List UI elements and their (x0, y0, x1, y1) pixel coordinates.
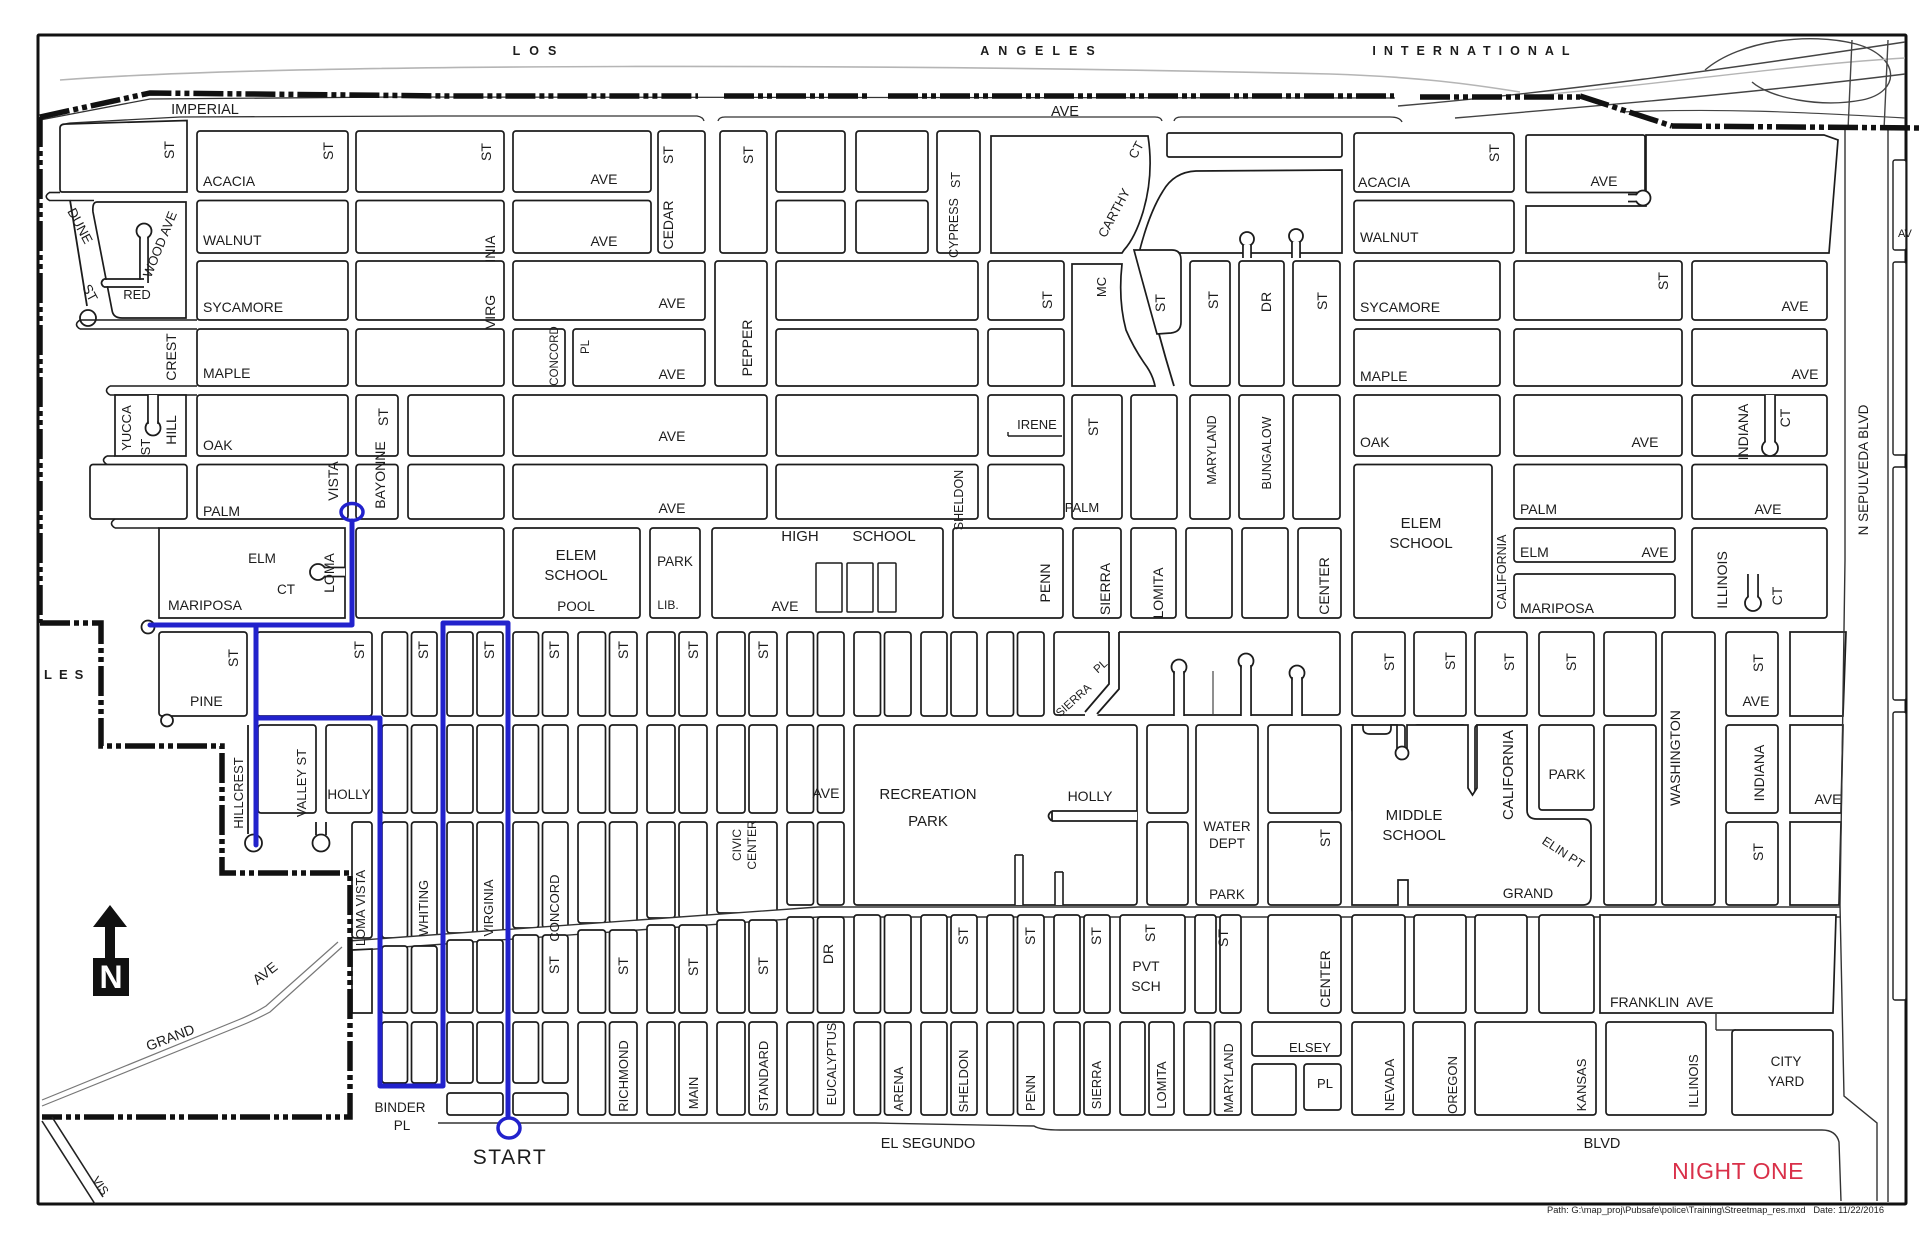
svg-text:EUCALYPTUS: EUCALYPTUS (825, 1023, 839, 1105)
svg-text:MAPLE: MAPLE (1360, 368, 1407, 384)
svg-text:N: N (99, 959, 122, 995)
svg-text:AVE: AVE (1632, 434, 1659, 450)
svg-text:LOMA VISTA: LOMA VISTA (353, 870, 368, 947)
svg-text:CT: CT (1777, 408, 1793, 427)
svg-text:ST: ST (1486, 144, 1502, 162)
svg-text:MARIPOSA: MARIPOSA (1520, 600, 1595, 616)
svg-text:AVE: AVE (772, 598, 799, 614)
svg-text:ST: ST (1501, 653, 1517, 671)
svg-text:WHITING: WHITING (416, 880, 431, 936)
svg-text:PARK: PARK (1548, 766, 1586, 782)
svg-text:LOMITA: LOMITA (1154, 1061, 1169, 1109)
svg-text:MARYLAND: MARYLAND (1222, 1043, 1236, 1112)
svg-text:BINDER: BINDER (374, 1100, 425, 1115)
svg-text:CALIFORNIA: CALIFORNIA (1495, 534, 1509, 610)
svg-text:CENTER: CENTER (1317, 950, 1333, 1008)
svg-text:BAYONNE: BAYONNE (372, 441, 388, 508)
svg-text:ST: ST (375, 408, 391, 426)
svg-text:PALM: PALM (1065, 500, 1099, 515)
svg-text:ST: ST (1039, 291, 1055, 309)
svg-text:AVE: AVE (1815, 791, 1842, 807)
svg-text:ST: ST (685, 958, 701, 976)
svg-text:ELSEY: ELSEY (1289, 1040, 1331, 1055)
svg-text:BLVD: BLVD (1584, 1136, 1621, 1152)
svg-text:ST: ST (1442, 652, 1458, 670)
svg-text:ST: ST (320, 142, 336, 160)
svg-text:PENN: PENN (1023, 1075, 1038, 1111)
svg-text:LOS: LOS (513, 44, 566, 58)
svg-text:ST: ST (1314, 292, 1330, 310)
svg-text:AVE: AVE (1792, 366, 1819, 382)
svg-text:PARK: PARK (908, 813, 948, 830)
svg-text:SIERRA: SIERRA (1097, 562, 1113, 615)
svg-text:VISTA: VISTA (325, 461, 341, 501)
svg-text:SCH: SCH (1131, 978, 1161, 994)
svg-text:AVE: AVE (1743, 693, 1770, 709)
svg-text:SYCAMORE: SYCAMORE (1360, 299, 1440, 315)
svg-text:ELM: ELM (248, 551, 276, 566)
svg-text:CIVIC: CIVIC (730, 829, 744, 861)
svg-text:ILLINOIS: ILLINOIS (1686, 1054, 1701, 1108)
svg-text:FRANKLIN: FRANKLIN (1610, 994, 1679, 1010)
svg-text:MAIN: MAIN (686, 1077, 701, 1110)
svg-text:ELEM: ELEM (1401, 515, 1442, 532)
svg-text:ST: ST (1317, 829, 1333, 847)
svg-text:STANDARD: STANDARD (756, 1041, 771, 1112)
svg-text:PL: PL (580, 339, 592, 354)
svg-text:AVE: AVE (1755, 501, 1782, 517)
svg-text:PL: PL (394, 1118, 411, 1133)
svg-text:YARD: YARD (1768, 1074, 1805, 1089)
svg-text:OAK: OAK (203, 437, 233, 453)
svg-text:MARIPOSA: MARIPOSA (168, 597, 243, 613)
svg-text:N SEPULVEDA BLVD: N SEPULVEDA BLVD (1856, 404, 1871, 535)
svg-text:ST: ST (660, 146, 676, 164)
svg-text:MC: MC (1094, 277, 1109, 297)
svg-text:ST: ST (685, 641, 701, 659)
svg-text:ST: ST (1750, 654, 1766, 672)
svg-text:ST: ST (1381, 653, 1397, 671)
svg-text:OREGON: OREGON (1445, 1056, 1460, 1114)
svg-text:ST: ST (546, 641, 562, 659)
svg-text:ST: ST (1088, 927, 1104, 945)
svg-text:AVE: AVE (591, 233, 618, 249)
svg-text:NEVADA: NEVADA (1382, 1058, 1397, 1111)
svg-text:ST: ST (955, 927, 971, 945)
svg-text:INDIANA: INDIANA (1751, 744, 1767, 801)
svg-text:ST: ST (1142, 924, 1158, 942)
svg-text:ARENA: ARENA (891, 1066, 906, 1111)
svg-text:AVE: AVE (591, 171, 618, 187)
svg-text:ELM: ELM (1520, 544, 1549, 560)
svg-text:KANSAS: KANSAS (1574, 1058, 1589, 1111)
svg-text:AVE: AVE (1591, 173, 1618, 189)
svg-text:LIB.: LIB. (657, 598, 678, 612)
svg-text:WASHINGTON: WASHINGTON (1667, 710, 1683, 806)
svg-text:SCHOOL: SCHOOL (544, 567, 607, 584)
svg-text:PVT: PVT (1132, 958, 1160, 974)
svg-text:CENTER: CENTER (1316, 557, 1332, 615)
svg-text:PL: PL (1317, 1076, 1333, 1091)
svg-text:ST: ST (1085, 418, 1101, 436)
svg-text:IRENE: IRENE (1017, 417, 1057, 432)
svg-text:CENTER: CENTER (745, 820, 759, 870)
svg-text:ST: ST (481, 641, 497, 659)
svg-text:WALNUT: WALNUT (203, 232, 262, 248)
svg-text:PENN: PENN (1037, 564, 1053, 603)
svg-text:AVE: AVE (1687, 994, 1714, 1010)
svg-text:VIRG: VIRG (482, 295, 498, 329)
svg-text:AV: AV (1898, 228, 1913, 240)
svg-text:WATER: WATER (1203, 819, 1250, 834)
svg-text:HOLLY: HOLLY (1068, 788, 1114, 804)
svg-text:BUNGALOW: BUNGALOW (1260, 416, 1274, 489)
svg-text:CONCORD: CONCORD (549, 326, 561, 385)
svg-text:SHELDON: SHELDON (956, 1050, 971, 1113)
svg-text:CT: CT (277, 582, 295, 597)
svg-text:AVE: AVE (659, 428, 686, 444)
svg-text:ACACIA: ACACIA (1358, 174, 1411, 190)
svg-text:ST: ST (615, 641, 631, 659)
svg-text:HIGH: HIGH (781, 528, 819, 545)
svg-text:START: START (473, 1146, 547, 1169)
svg-text:CYPRESS: CYPRESS (947, 198, 961, 258)
svg-text:YUCCA: YUCCA (119, 405, 134, 451)
svg-text:SCHOOL: SCHOOL (1389, 535, 1452, 552)
svg-text:NIGHT ONE: NIGHT ONE (1672, 1158, 1804, 1184)
svg-text:ELEM: ELEM (556, 547, 597, 564)
svg-text:RED: RED (123, 287, 150, 302)
svg-text:ST: ST (138, 439, 153, 456)
svg-text:ST: ST (1563, 653, 1579, 671)
svg-text:ST: ST (161, 141, 177, 159)
svg-text:ST: ST (225, 649, 241, 667)
svg-text:MARYLAND: MARYLAND (1205, 415, 1219, 484)
svg-text:SCHOOL: SCHOOL (1382, 827, 1445, 844)
svg-text:EL SEGUNDO: EL SEGUNDO (881, 1136, 976, 1152)
svg-text:ST: ST (1022, 927, 1038, 945)
svg-text:ST: ST (755, 641, 771, 659)
svg-text:DR: DR (820, 944, 836, 964)
svg-text:MAPLE: MAPLE (203, 365, 250, 381)
svg-text:PARK: PARK (1209, 887, 1245, 902)
svg-text:ST: ST (1215, 929, 1231, 947)
svg-text:HILLCREST: HILLCREST (231, 757, 246, 829)
svg-text:AVE: AVE (1051, 104, 1079, 120)
svg-text:HILL: HILL (163, 415, 179, 445)
svg-text:ST: ST (415, 641, 431, 659)
svg-text:IMPERIAL: IMPERIAL (171, 102, 239, 118)
svg-text:AVE: AVE (813, 785, 840, 801)
svg-text:INDIANA: INDIANA (1735, 403, 1751, 460)
svg-text:AVE: AVE (1642, 544, 1669, 560)
svg-text:ST: ST (1205, 291, 1221, 309)
svg-text:CEDAR: CEDAR (660, 200, 676, 249)
svg-text:DEPT: DEPT (1209, 836, 1245, 851)
svg-text:LES: LES (44, 667, 90, 682)
svg-text:GRAND: GRAND (1503, 885, 1554, 901)
svg-text:ST: ST (1655, 272, 1671, 290)
svg-text:AVE: AVE (1782, 298, 1809, 314)
svg-text:PARK: PARK (657, 554, 693, 569)
svg-text:PALM: PALM (1520, 501, 1557, 517)
svg-text:VALLEY ST: VALLEY ST (294, 749, 309, 817)
svg-text:ST: ST (755, 957, 771, 975)
svg-text:AVE: AVE (659, 295, 686, 311)
svg-text:OAK: OAK (1360, 434, 1390, 450)
svg-text:LOMA: LOMA (321, 553, 337, 593)
svg-text:Path: G:\map_proj\Pubsafe\poli: Path: G:\map_proj\Pubsafe\police\Trainin… (1547, 1205, 1884, 1215)
svg-text:ST: ST (1152, 294, 1168, 312)
svg-text:LOMITA: LOMITA (1150, 567, 1166, 619)
svg-text:ST: ST (949, 172, 963, 188)
svg-text:ST: ST (351, 641, 367, 659)
svg-text:ACACIA: ACACIA (203, 173, 256, 189)
svg-text:MIDDLE: MIDDLE (1386, 807, 1443, 824)
svg-text:DR: DR (1258, 292, 1274, 312)
svg-text:ST: ST (740, 146, 756, 164)
svg-text:SCHOOL: SCHOOL (852, 528, 915, 545)
svg-text:PALM: PALM (203, 503, 240, 519)
svg-text:AVE: AVE (659, 500, 686, 516)
svg-text:CREST: CREST (163, 333, 179, 381)
svg-text:SHELDON: SHELDON (952, 470, 966, 530)
svg-text:ANGELES: ANGELES (980, 44, 1103, 58)
svg-text:CALIFORNIA: CALIFORNIA (1500, 730, 1517, 820)
svg-text:CONCORD: CONCORD (547, 874, 562, 941)
svg-text:ILLINOIS: ILLINOIS (1714, 551, 1730, 609)
svg-text:ST: ST (546, 956, 562, 974)
svg-text:PINE: PINE (190, 693, 223, 709)
svg-text:INTERNATIONAL: INTERNATIONAL (1372, 44, 1577, 58)
svg-text:PEPPER: PEPPER (739, 320, 755, 377)
svg-text:SYCAMORE: SYCAMORE (203, 299, 283, 315)
svg-text:RICHMOND: RICHMOND (616, 1040, 631, 1112)
svg-text:CT: CT (1769, 586, 1785, 605)
svg-text:AVE: AVE (659, 366, 686, 382)
svg-text:INIA: INIA (482, 235, 498, 263)
svg-text:CITY: CITY (1771, 1054, 1802, 1069)
svg-text:HOLLY: HOLLY (327, 787, 370, 802)
svg-text:SIERRA: SIERRA (1089, 1060, 1104, 1109)
svg-text:ST: ST (615, 957, 631, 975)
svg-text:POOL: POOL (557, 599, 595, 614)
svg-text:ST: ST (1750, 843, 1766, 861)
svg-text:RECREATION: RECREATION (879, 786, 976, 803)
svg-text:WALNUT: WALNUT (1360, 229, 1419, 245)
svg-text:VIRGINIA: VIRGINIA (481, 879, 496, 936)
svg-text:ST: ST (478, 143, 494, 161)
